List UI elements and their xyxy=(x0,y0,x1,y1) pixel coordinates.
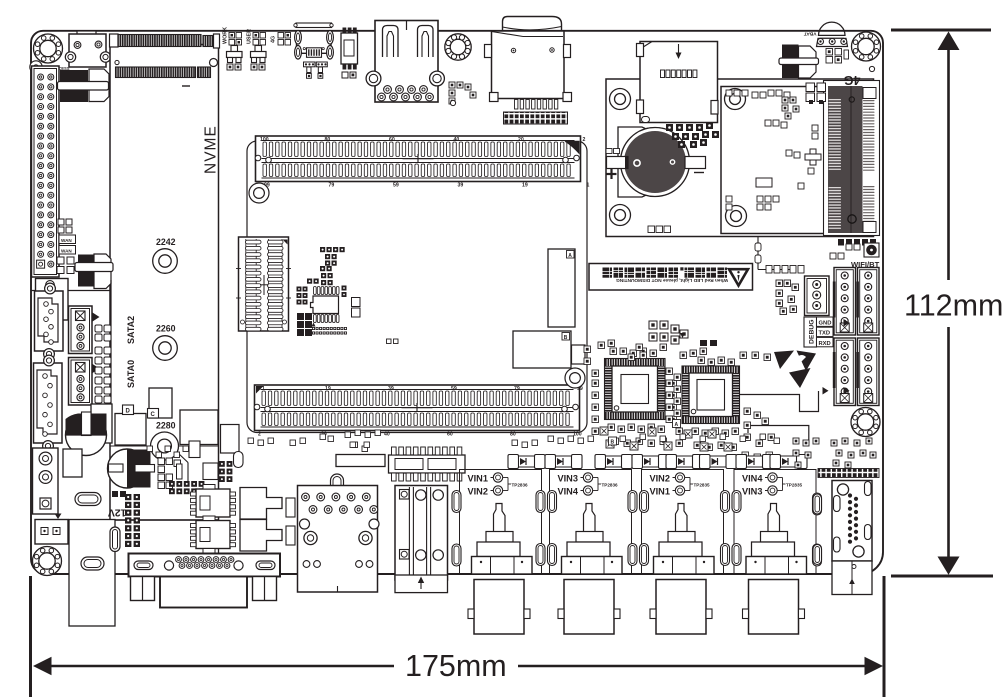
svg-text:VIN3: VIN3 xyxy=(558,474,578,484)
svg-text:VIN2: VIN2 xyxy=(650,474,670,484)
svg-text:When Red LED Light, please NOT: When Red LED Light, please NOT DISMOUNTI… xyxy=(616,277,728,283)
svg-text:SATA0: SATA0 xyxy=(126,360,136,388)
svg-text:2280: 2280 xyxy=(156,421,176,431)
svg-text:1: 1 xyxy=(262,386,265,392)
svg-text:TXD: TXD xyxy=(819,331,831,337)
svg-text:TP2835: TP2835 xyxy=(786,483,803,488)
svg-text:4G: 4G xyxy=(271,36,277,43)
svg-text:USER: USER xyxy=(247,29,253,44)
svg-text:VBAT: VBAT xyxy=(804,31,817,37)
svg-text:19: 19 xyxy=(522,183,528,189)
svg-text:VIN4: VIN4 xyxy=(558,487,579,497)
svg-text:D: D xyxy=(126,409,131,415)
svg-text:2: 2 xyxy=(583,137,586,143)
svg-text:VIN1: VIN1 xyxy=(468,474,488,484)
svg-text:1: 1 xyxy=(587,183,590,189)
svg-text:NVME: NVME xyxy=(203,125,220,174)
svg-text:DEBUG: DEBUG xyxy=(809,319,816,344)
svg-text:12V: 12V xyxy=(108,507,127,519)
svg-text:60: 60 xyxy=(389,137,395,143)
svg-text:B: B xyxy=(611,440,615,446)
svg-text:20: 20 xyxy=(518,137,524,143)
svg-text:112mm: 112mm xyxy=(904,289,1003,323)
svg-text:C: C xyxy=(151,412,156,418)
svg-text:59: 59 xyxy=(393,183,399,189)
svg-text:2260: 2260 xyxy=(156,324,176,334)
svg-text:79: 79 xyxy=(329,183,335,189)
svg-text:VIN4: VIN4 xyxy=(742,474,763,484)
svg-text:79: 79 xyxy=(514,386,520,392)
svg-text:VIN2: VIN2 xyxy=(468,487,488,497)
svg-text:2: 2 xyxy=(258,432,261,438)
svg-text:TP2835: TP2835 xyxy=(694,483,711,488)
svg-text:100: 100 xyxy=(573,432,582,438)
svg-text:80: 80 xyxy=(325,137,331,143)
svg-text:59: 59 xyxy=(451,386,457,392)
svg-text:WAN: WAN xyxy=(61,249,72,254)
svg-text:100: 100 xyxy=(260,137,269,143)
svg-text:39: 39 xyxy=(388,386,394,392)
svg-text:VIN3: VIN3 xyxy=(742,487,762,497)
svg-text:4G: 4G xyxy=(844,73,861,87)
svg-text:2242: 2242 xyxy=(156,237,176,247)
svg-text:A: A xyxy=(675,422,679,428)
svg-text:RXD: RXD xyxy=(819,341,831,347)
svg-text:80: 80 xyxy=(510,432,516,438)
svg-text:SATA2: SATA2 xyxy=(126,316,136,344)
svg-text:175mm: 175mm xyxy=(405,649,507,683)
svg-text:WAN: WAN xyxy=(61,238,72,243)
svg-text:39: 39 xyxy=(458,183,464,189)
svg-text:19: 19 xyxy=(325,386,331,392)
svg-text:60: 60 xyxy=(447,432,453,438)
svg-text:40: 40 xyxy=(384,432,390,438)
svg-text:GND: GND xyxy=(819,321,832,327)
svg-text:A: A xyxy=(568,253,572,259)
svg-text:WORK: WORK xyxy=(223,27,229,44)
svg-text:TP2836: TP2836 xyxy=(602,483,619,488)
svg-text:TP2836: TP2836 xyxy=(512,483,529,488)
svg-text:40: 40 xyxy=(454,137,460,143)
svg-text:B: B xyxy=(564,335,568,341)
svg-text:VIN1: VIN1 xyxy=(650,487,670,497)
